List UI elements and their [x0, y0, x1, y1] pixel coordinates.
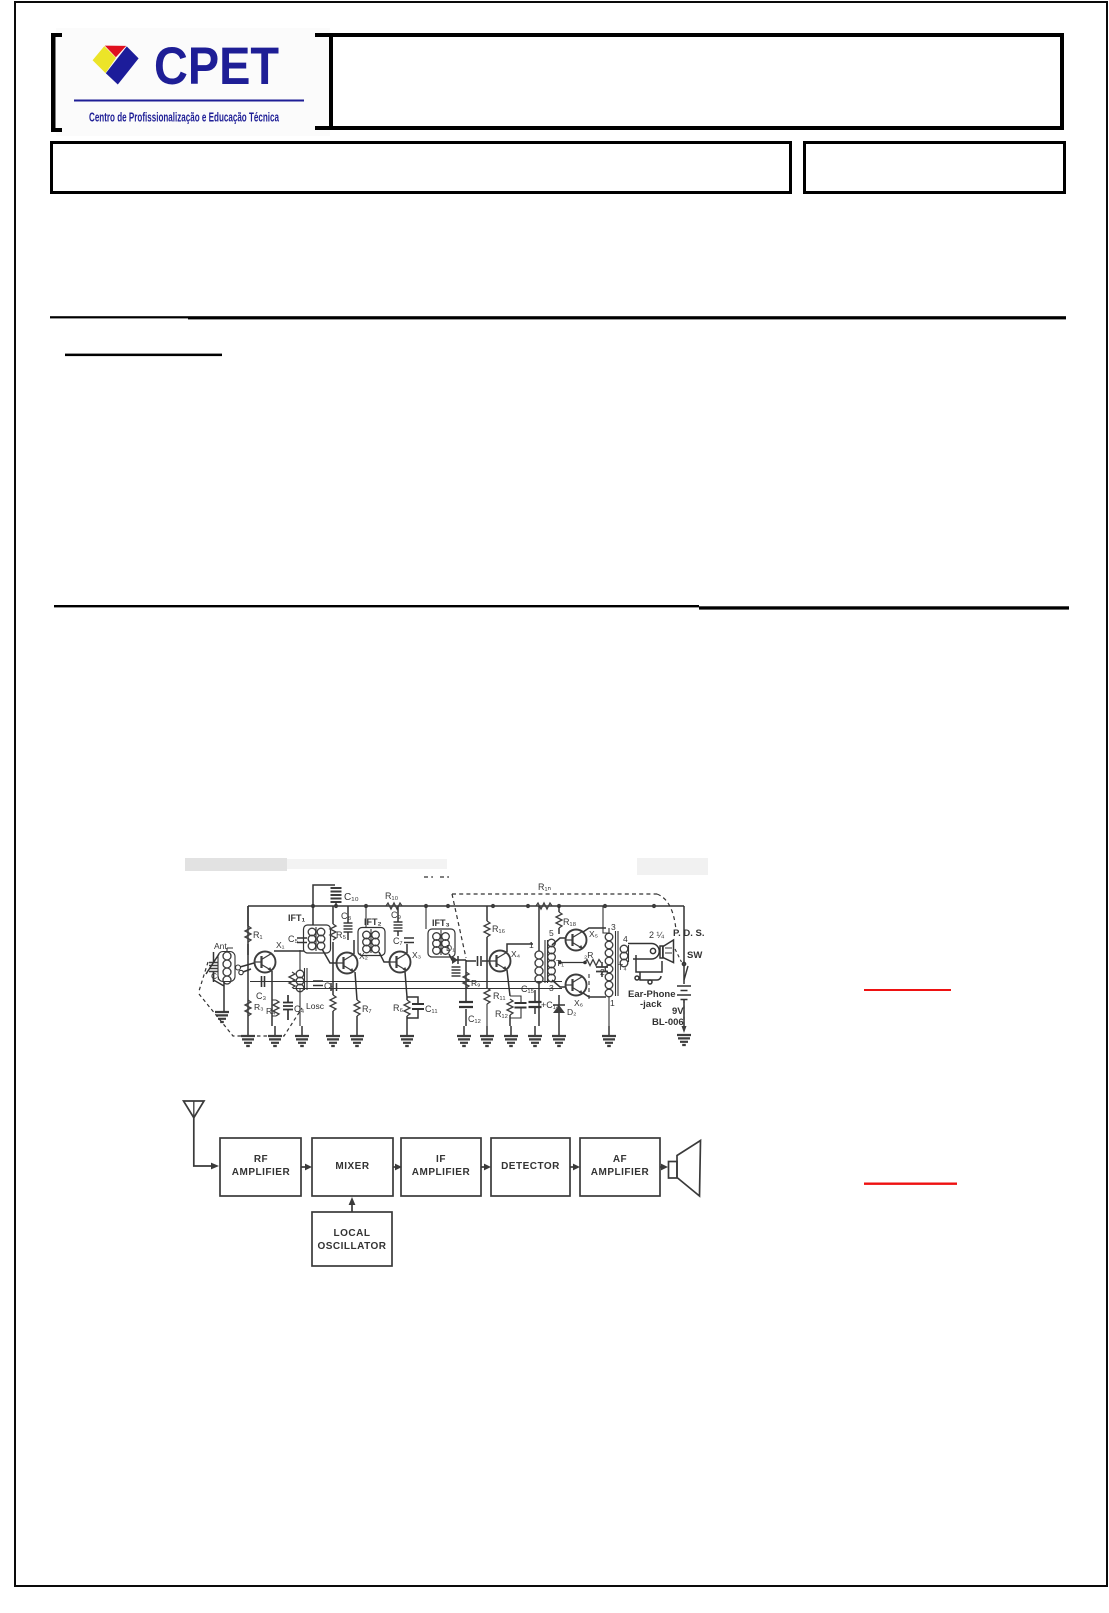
- svg-text:2 ¼: 2 ¼: [649, 930, 665, 940]
- svg-text:R₅: R₅: [336, 930, 346, 940]
- svg-text:AMPLIFIER: AMPLIFIER: [412, 1167, 471, 1178]
- svg-text:C₁: C₁: [211, 971, 220, 981]
- svg-text:R₁ₙ: R₁ₙ: [538, 882, 552, 892]
- svg-text:AMPLIFIER: AMPLIFIER: [591, 1167, 650, 1178]
- svg-text:1: 1: [529, 940, 534, 950]
- svg-text:3: 3: [549, 983, 554, 993]
- svg-text:D₂: D₂: [567, 1007, 576, 1017]
- svg-text:OSCILLATOR: OSCILLATOR: [317, 1241, 386, 1252]
- svg-text:LOCAL: LOCAL: [334, 1228, 371, 1239]
- svg-text:X₅: X₅: [589, 929, 598, 939]
- svg-text:C₇: C₇: [393, 936, 403, 946]
- svg-text:R₃: R₃: [254, 1002, 264, 1012]
- svg-text:1: 1: [610, 998, 615, 1008]
- svg-text:SW: SW: [687, 950, 702, 961]
- svg-text:R₁: R₁: [253, 930, 263, 940]
- svg-text:AMPLIFIER: AMPLIFIER: [232, 1167, 291, 1178]
- svg-text:R₁₁: R₁₁: [493, 991, 506, 1001]
- svg-text:MIXER: MIXER: [335, 1161, 369, 1172]
- svg-text:3: 3: [611, 922, 616, 932]
- svg-text:R₄: R₄: [266, 1006, 276, 1016]
- svg-text:C₈: C₈: [341, 911, 351, 921]
- svg-text:CPET: CPET: [154, 37, 279, 96]
- svg-text:4: 4: [623, 934, 628, 944]
- svg-text:R₁₈: R₁₈: [563, 917, 577, 927]
- svg-text:Losc: Losc: [306, 1001, 325, 1011]
- svg-text:Centro de Profissionalização e: Centro de Profissionalização e Educação …: [89, 110, 279, 125]
- svg-text:R₁₆: R₁₆: [492, 924, 506, 934]
- svg-text:C₁₁: C₁₁: [425, 1004, 438, 1014]
- svg-text:₂R: ₂R: [584, 950, 593, 960]
- svg-text:DETECTOR: DETECTOR: [501, 1161, 560, 1172]
- svg-text:IFT₁: IFT₁: [288, 913, 305, 923]
- svg-text:R₁₂: R₁₂: [495, 1009, 509, 1019]
- svg-text:R₇: R₇: [362, 1004, 372, 1014]
- svg-text:P. D. S.: P. D. S.: [673, 928, 705, 939]
- svg-text:IF: IF: [436, 1154, 446, 1165]
- svg-text:Ant: Ant: [214, 941, 227, 951]
- svg-text:9V: 9V: [672, 1006, 684, 1017]
- svg-text:AF: AF: [613, 1154, 627, 1165]
- svg-text:C₉: C₉: [391, 910, 401, 920]
- svg-text:BL-006: BL-006: [652, 1017, 684, 1028]
- svg-text:RF: RF: [254, 1154, 268, 1165]
- svg-text:C₁₅: C₁₅: [521, 984, 535, 994]
- svg-text:5: 5: [549, 928, 554, 938]
- svg-text:IFT₃: IFT₃: [432, 918, 450, 928]
- svg-text:-jack: -jack: [640, 999, 662, 1010]
- svg-text:C₄: C₄: [294, 1004, 304, 1014]
- svg-text:C₃: C₃: [256, 991, 266, 1001]
- svg-text:X₃: X₃: [412, 950, 421, 960]
- svg-text:T₄: T₄: [618, 962, 627, 972]
- svg-text:X₄: X₄: [511, 949, 521, 959]
- svg-text:C₁₂: C₁₂: [468, 1014, 482, 1024]
- svg-text:R₁₀: R₁₀: [385, 891, 399, 901]
- svg-text:C₅: C₅: [288, 934, 298, 944]
- svg-text:R₆: R₆: [393, 1003, 403, 1013]
- svg-text:C₁₀: C₁₀: [344, 892, 359, 903]
- svg-text:X₁: X₁: [276, 940, 285, 950]
- svg-text:R₉: R₉: [471, 978, 481, 988]
- svg-text:IFT₂: IFT₂: [364, 917, 382, 927]
- svg-text:D₁: D₁: [446, 943, 455, 953]
